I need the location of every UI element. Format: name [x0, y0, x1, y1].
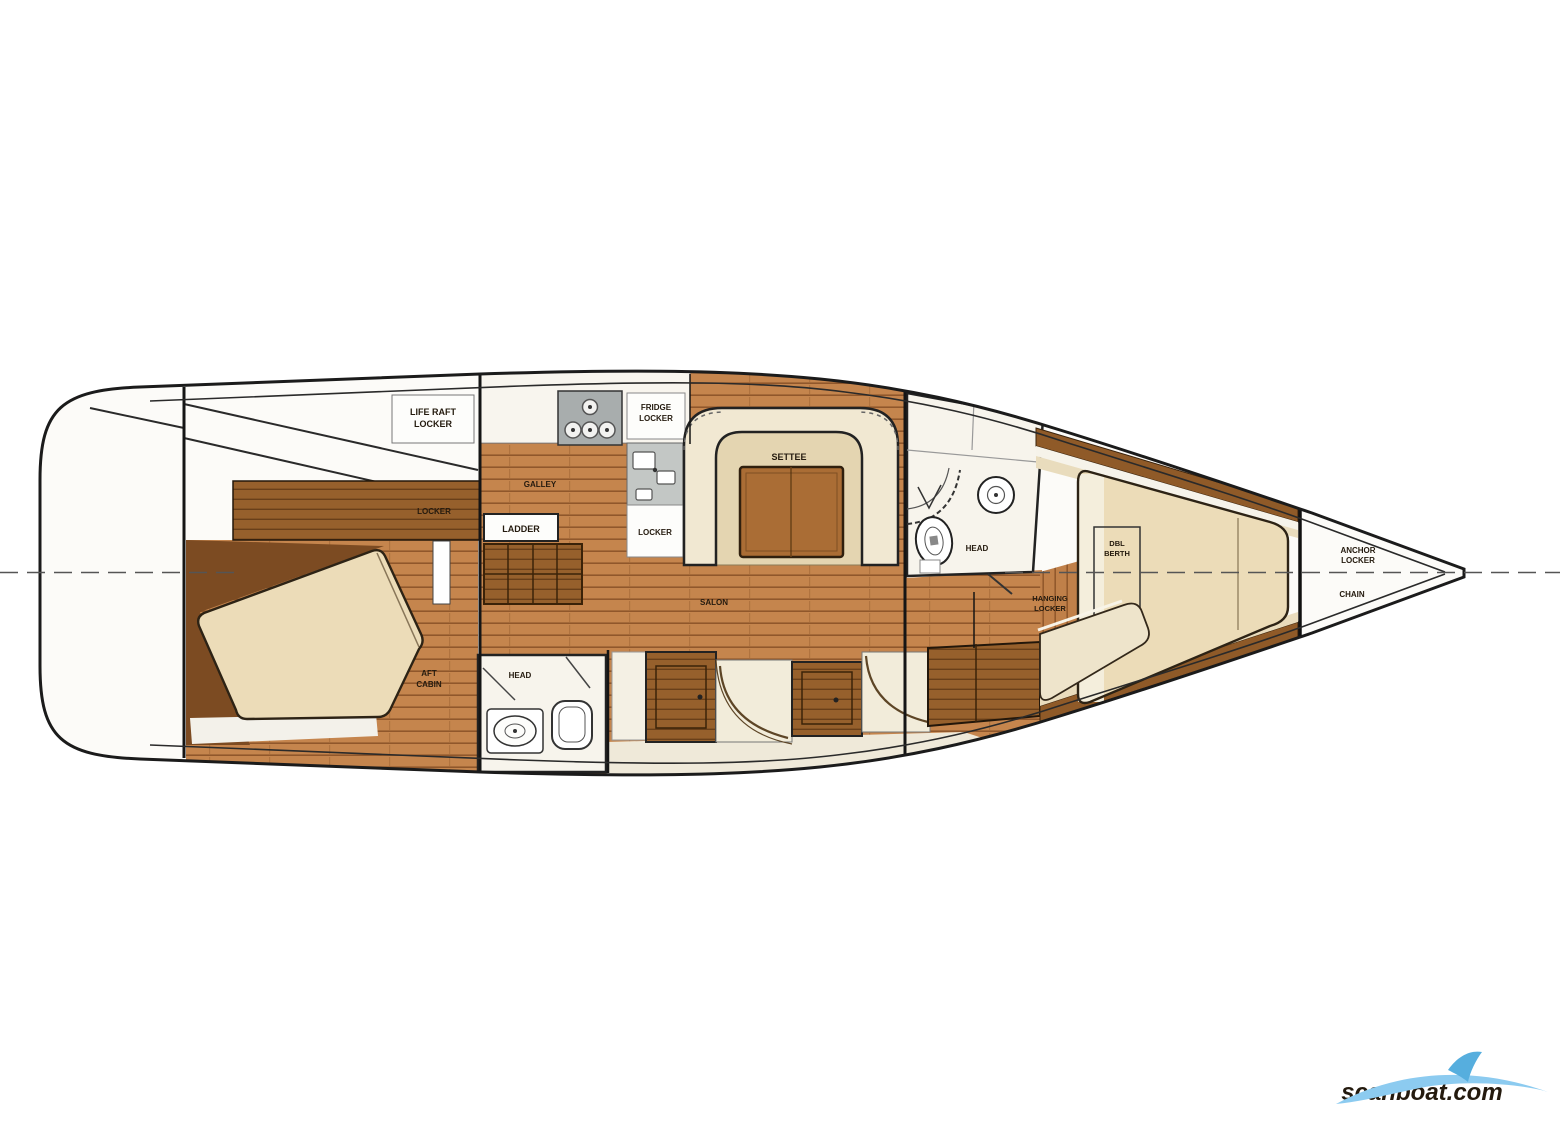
- sink-icon: [636, 489, 652, 500]
- ladder-label: LADDER: [502, 524, 540, 534]
- fridge-label2: LOCKER: [639, 414, 673, 423]
- vberth-label2: BERTH: [1104, 549, 1130, 558]
- cockpit-locker-label2: LOCKER: [414, 419, 453, 429]
- fwd-locker-label: HANGING: [1032, 594, 1068, 603]
- anchor-locker-label2: LOCKER: [1341, 556, 1375, 565]
- aft-cabin-post: [433, 541, 450, 604]
- burner-dot: [588, 405, 592, 409]
- vberth-label: DBL: [1109, 539, 1125, 548]
- sink-icon: [633, 452, 655, 469]
- drain-dot: [513, 729, 517, 733]
- drain-dot: [994, 493, 998, 497]
- aft-cabin-label2: CABIN: [416, 680, 442, 689]
- burner-dot: [588, 428, 592, 432]
- cockpit-locker-label: LIFE RAFT: [410, 407, 456, 417]
- sink-icon: [657, 471, 675, 484]
- aft-head-label: HEAD: [509, 671, 532, 680]
- burner-dot: [605, 428, 609, 432]
- aft-cabin-label: AFT: [421, 669, 437, 678]
- faucet-dot: [653, 468, 657, 472]
- watermark: scanboat.com: [1336, 1052, 1548, 1106]
- settee-label: SETTEE: [771, 452, 806, 462]
- fwd-locker-label2: LOCKER: [1034, 604, 1066, 613]
- nav-cabinet: [928, 642, 1040, 726]
- settee-end: [612, 652, 646, 740]
- salon-label: SALON: [700, 598, 728, 607]
- fwd-head-label: HEAD: [966, 544, 989, 553]
- boat-layout-diagram: LIFE RAFT LOCKER LOCKER AFT CABIN GALLEY…: [0, 0, 1560, 1128]
- aft-head: [478, 655, 606, 772]
- chain-label: CHAIN: [1339, 590, 1365, 599]
- fwd-head: [907, 393, 1043, 594]
- door-handle: [698, 695, 703, 700]
- fridge-label: FRIDGE: [641, 403, 672, 412]
- burner-dot: [571, 428, 575, 432]
- boat-layout-page: LIFE RAFT LOCKER LOCKER AFT CABIN GALLEY…: [0, 0, 1560, 1128]
- anchor-locker-label: ANCHOR: [1340, 546, 1375, 555]
- sink-locker-label: LOCKER: [638, 528, 672, 537]
- salon: [684, 408, 898, 565]
- hatch-locker-label: LOCKER: [417, 507, 451, 516]
- door-handle: [834, 698, 839, 703]
- head-shelf: [920, 560, 940, 573]
- galley-label: GALLEY: [524, 480, 557, 489]
- hull-interior: [0, 360, 1560, 790]
